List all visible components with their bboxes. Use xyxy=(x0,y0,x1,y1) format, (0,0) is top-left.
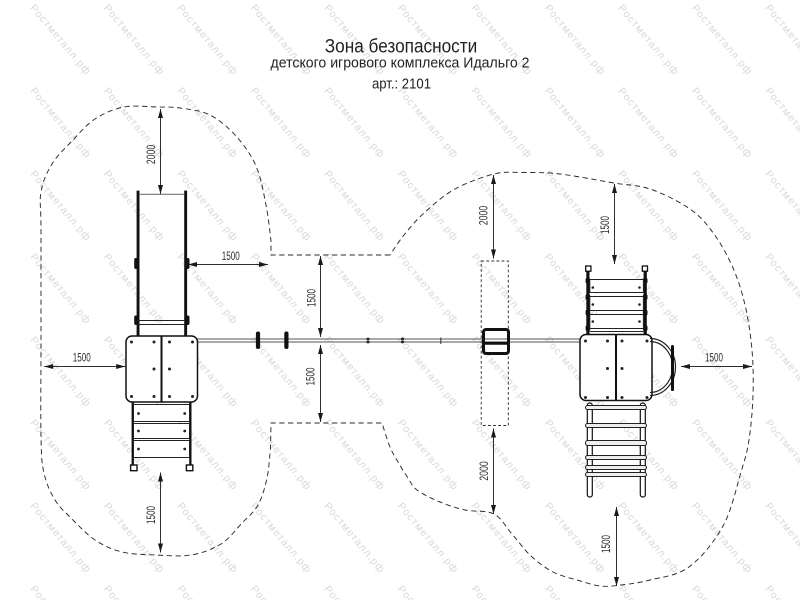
svg-text:1500: 1500 xyxy=(146,506,158,524)
svg-text:детского игрового комплекса Ид: детского игрового комплекса Идальго 2 xyxy=(271,55,530,72)
svg-text:1500: 1500 xyxy=(306,289,318,307)
svg-text:2000: 2000 xyxy=(479,461,491,481)
svg-text:1500: 1500 xyxy=(305,368,317,386)
svg-text:1500: 1500 xyxy=(705,353,723,365)
svg-text:1500: 1500 xyxy=(222,251,240,263)
svg-text:2000: 2000 xyxy=(146,145,158,165)
svg-text:1500: 1500 xyxy=(600,216,612,234)
svg-text:1500: 1500 xyxy=(601,535,613,553)
svg-text:арт.: 2101: арт.: 2101 xyxy=(372,75,431,92)
svg-text:1500: 1500 xyxy=(73,352,91,364)
svg-text:2000: 2000 xyxy=(479,206,491,226)
